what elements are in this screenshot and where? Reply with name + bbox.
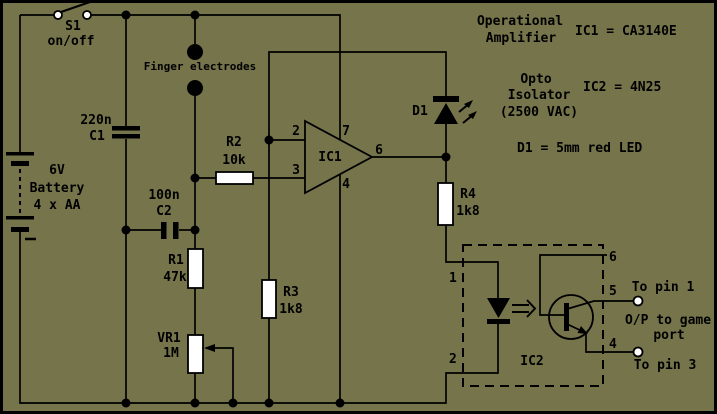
- note-ic1-equation: IC1 = CA3140E: [575, 24, 677, 39]
- label-op-game-line1: O/P to game: [625, 313, 711, 328]
- label-r2-value: 10k: [222, 153, 246, 168]
- label-opamp-pin2: 2: [292, 124, 300, 139]
- label-to-pin-3: To pin 3: [634, 358, 697, 373]
- switch-contact-right: [83, 11, 91, 19]
- label-battery-voltage: 6V: [49, 163, 65, 178]
- note-opamp-title-1: Operational: [477, 14, 563, 29]
- label-ic2: IC2: [520, 354, 543, 369]
- battery-plate-long-1: [6, 152, 34, 156]
- phototransistor-base-bar: [564, 303, 569, 331]
- resistor-r4: [438, 183, 453, 225]
- label-op-game-line2: port: [653, 328, 684, 343]
- label-vr1-ref: VR1: [157, 331, 181, 346]
- switch-contact-left: [54, 11, 62, 19]
- c2-plate-left: [161, 222, 167, 239]
- label-r3-ref: R3: [283, 285, 299, 300]
- label-ic1: IC1: [318, 150, 342, 165]
- potentiometer-vr1: [188, 335, 203, 373]
- label-r4-value: 1k8: [456, 204, 480, 219]
- label-r1-ref: R1: [168, 253, 184, 268]
- label-r3-value: 1k8: [279, 302, 303, 317]
- note-opamp-title-2: Amplifier: [486, 31, 557, 46]
- resistor-r2: [216, 172, 253, 184]
- note-ic2-equation: IC2 = 4N25: [583, 80, 661, 95]
- label-opamp-pin3: 3: [292, 163, 300, 178]
- electrode-bottom: [187, 80, 203, 96]
- label-c1-ref: C1: [89, 129, 105, 144]
- label-s1: S1: [65, 19, 81, 34]
- label-opamp-pin7: 7: [342, 124, 350, 139]
- label-r2-ref: R2: [226, 135, 242, 150]
- label-to-pin-1: To pin 1: [632, 280, 695, 295]
- c1-plate-bottom: [112, 134, 140, 139]
- label-c2-ref: C2: [156, 204, 172, 219]
- label-battery-cells: 4 x AA: [34, 198, 81, 213]
- c2-plate-right: [173, 222, 179, 239]
- label-c2-value: 100n: [148, 188, 179, 203]
- resistor-r3: [262, 280, 276, 318]
- opto-led-bar: [487, 319, 510, 324]
- note-opto-title-3: (2500 VAC): [500, 105, 578, 120]
- note-d1-equation: D1 = 5mm red LED: [517, 141, 642, 156]
- label-s1-onoff: on/off: [48, 34, 95, 49]
- c1-plate-top: [112, 126, 140, 131]
- label-r1-value: 47k: [163, 270, 187, 285]
- label-opamp-pin4: 4: [342, 177, 350, 192]
- electrode-top: [187, 44, 203, 60]
- terminal-pin3: [634, 348, 643, 357]
- resistor-r1: [188, 249, 203, 288]
- label-r4-ref: R4: [460, 187, 476, 202]
- label-opto-pin4: 4: [609, 337, 617, 352]
- label-finger-electrodes: Finger electrodes: [144, 60, 257, 73]
- label-opto-pin1: 1: [449, 271, 457, 286]
- battery-plate-long-2: [6, 216, 34, 220]
- battery-plate-short-1: [11, 161, 29, 166]
- label-opamp-pin6: 6: [375, 143, 383, 158]
- note-opto-title-2: Isolator: [508, 88, 571, 103]
- note-opto-title-1: Opto: [520, 72, 551, 87]
- circuit-schematic: S1 on/off 6V Battery 4 x AA Finger elect…: [0, 0, 717, 414]
- label-vr1-value: 1M: [163, 346, 179, 361]
- label-opto-pin5: 5: [609, 284, 617, 299]
- label-opto-pin2: 2: [449, 352, 457, 367]
- label-opto-pin6: 6: [609, 250, 617, 265]
- d1-cathode-bar: [433, 96, 459, 102]
- label-battery: Battery: [30, 181, 85, 196]
- terminal-pin1: [634, 297, 643, 306]
- label-d1: D1: [412, 104, 428, 119]
- label-c1-value: 220n: [80, 113, 111, 128]
- battery-plate-short-2: [11, 227, 29, 232]
- schematic-canvas: S1 on/off 6V Battery 4 x AA Finger elect…: [0, 0, 717, 414]
